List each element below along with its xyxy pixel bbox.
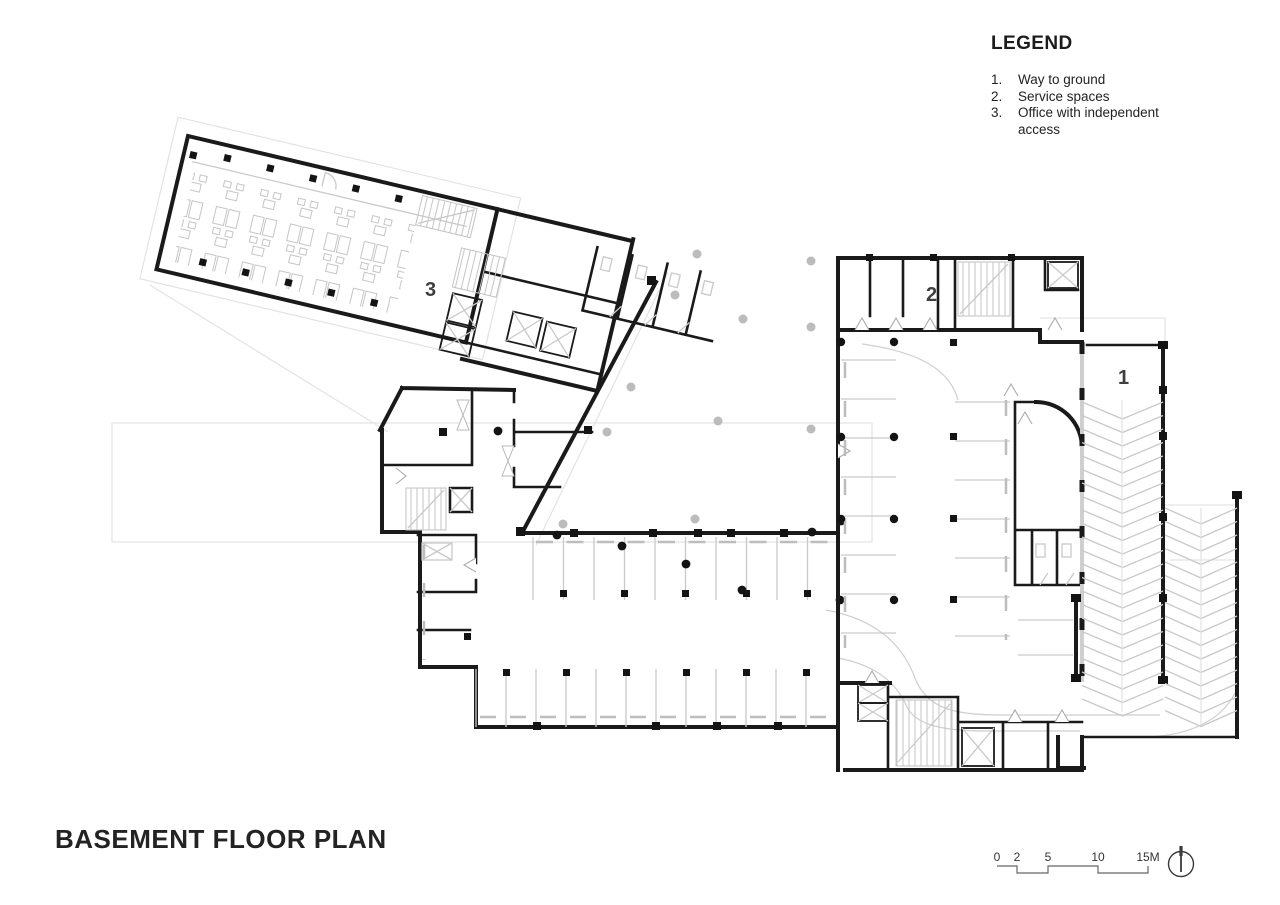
stair-core [452, 248, 505, 297]
parking-stall-dividers [476, 537, 808, 727]
scale-tick-0: 0 [994, 850, 1001, 864]
scale-tick-5: 5 [1045, 850, 1052, 864]
legend-title: LEGEND [991, 33, 1199, 55]
toilet-fixtures [1036, 544, 1074, 585]
column-dots [494, 427, 846, 605]
double-door-icon [502, 446, 514, 476]
elevator-core-icons [440, 293, 578, 379]
toilet-rooms [582, 247, 726, 341]
parking-stalls-right [841, 360, 1073, 655]
legend-item-3: 3. Office with independent access [991, 105, 1199, 138]
legend: LEGEND 1. Way to ground 2. Service space… [991, 33, 1199, 138]
legend-item-label: Way to ground [1018, 72, 1199, 89]
legend-item-number: 3. [991, 105, 1018, 138]
right-building [516, 254, 1242, 770]
legend-item-number: 1. [991, 72, 1018, 89]
north-arrow-icon [1169, 846, 1194, 877]
office-wing [139, 117, 734, 414]
double-door-icon [457, 400, 469, 430]
legend-item-label: Service spaces [1018, 89, 1199, 106]
zone-label-2: 2 [926, 284, 937, 307]
desk-area [173, 170, 417, 314]
floor-plan-page: LEGEND 1. Way to ground 2. Service space… [0, 0, 1280, 905]
legend-item-2: 2. Service spaces [991, 89, 1199, 106]
zone-label-3: 3 [425, 279, 436, 302]
legend-item-1: 1. Way to ground [991, 72, 1199, 89]
car-lift-icon [422, 543, 452, 560]
scale-tick-15m: 15M [1136, 850, 1159, 864]
parking-middle [439, 250, 845, 731]
page-title: BASEMENT FLOOR PLAN [55, 824, 387, 855]
legend-item-label: Office with independent access [1018, 105, 1199, 138]
elevator-top-right-icon [1048, 262, 1078, 288]
zone-label-1: 1 [1118, 367, 1129, 390]
scale-tick-2: 2 [1014, 850, 1021, 864]
scale-bar-steps [997, 866, 1148, 873]
scale-tick-10: 10 [1091, 850, 1104, 864]
legend-item-number: 2. [991, 89, 1018, 106]
